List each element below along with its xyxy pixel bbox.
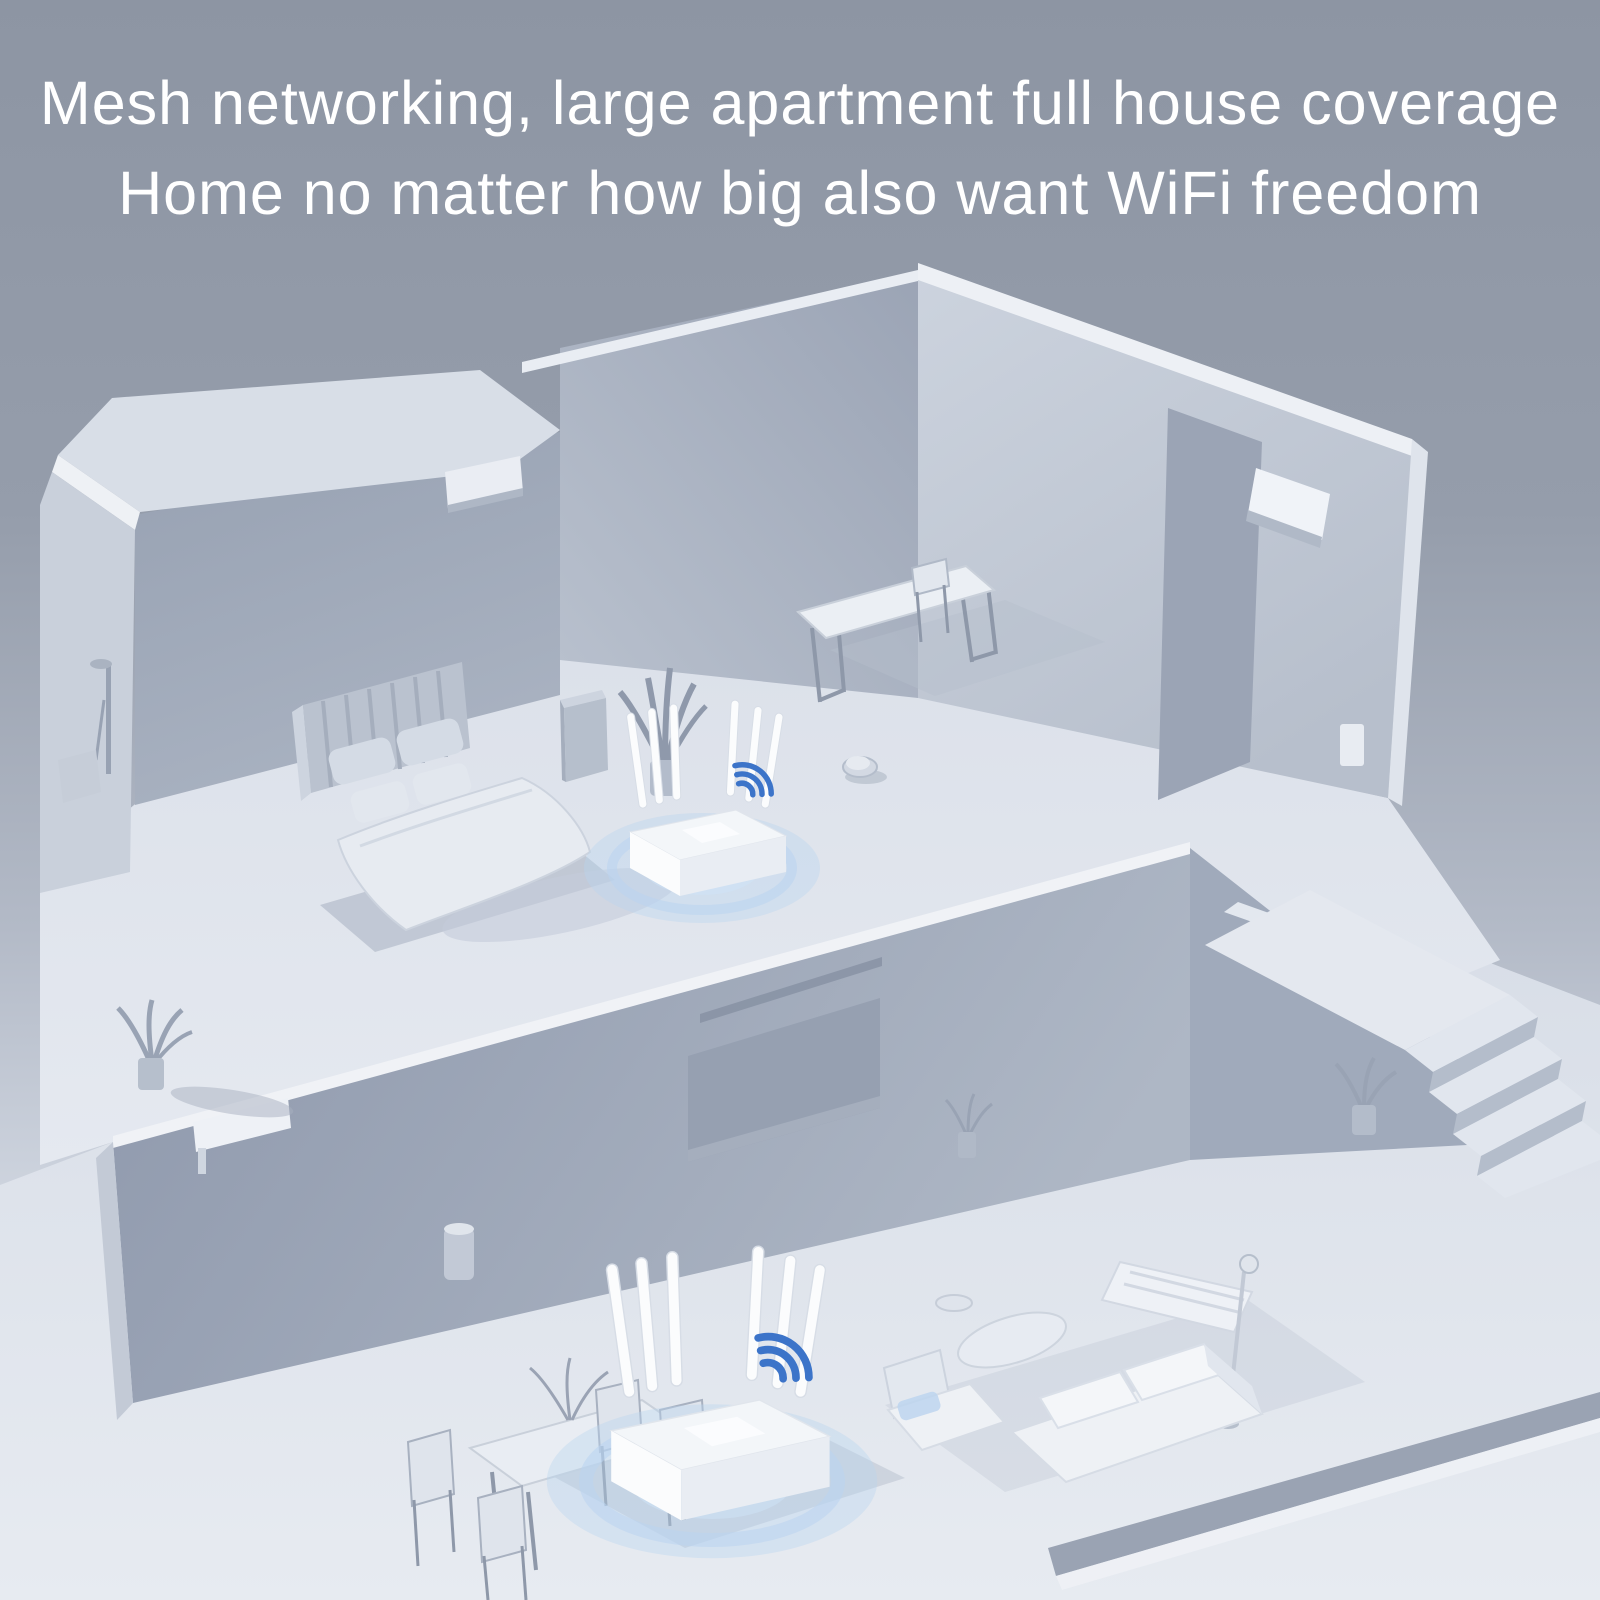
waste-bin [444, 1223, 474, 1280]
center-wall-face [560, 272, 918, 698]
shower-pole [106, 662, 111, 774]
wall-switch [1340, 724, 1364, 766]
cabinet-front [564, 698, 608, 782]
headline-line-1: Mesh networking, large apartment full ho… [0, 58, 1600, 148]
shelf-bracket [198, 1148, 206, 1174]
bin-body [444, 1228, 474, 1280]
center-wall [522, 270, 918, 698]
bin-top [444, 1223, 474, 1235]
headline-line-2: Home no matter how big also want WiFi fr… [0, 148, 1600, 238]
lamp-head [1240, 1255, 1258, 1273]
marketing-banner: Mesh networking, large apartment full ho… [0, 0, 1600, 1600]
plant-pot [1352, 1105, 1376, 1135]
bedside-cabinet [560, 690, 608, 782]
leaf [149, 1000, 152, 1062]
plant-pot [958, 1132, 976, 1158]
side-table [936, 1295, 972, 1311]
chair-back [478, 1486, 526, 1562]
shower-head [90, 659, 112, 669]
chair-back [408, 1430, 454, 1506]
vacuum-top [846, 756, 870, 770]
headline: Mesh networking, large apartment full ho… [0, 58, 1600, 238]
plant-pot [138, 1058, 164, 1090]
scene-illustration [0, 0, 1600, 1600]
right-block-alcove [1158, 408, 1262, 800]
left-outer-wall [40, 472, 135, 893]
